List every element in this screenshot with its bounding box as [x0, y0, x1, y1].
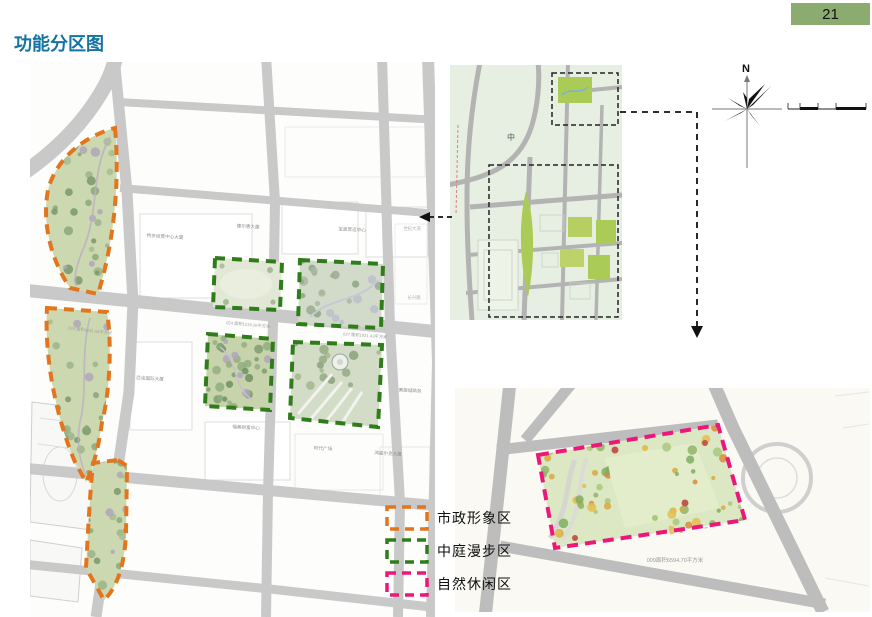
- legend-label-nature: 自然休闲区: [437, 574, 512, 594]
- overview-center-label: 中: [507, 132, 515, 142]
- nature-leisure-detail-map: 009面积6594.70平方米: [455, 388, 870, 612]
- main-site-plan: 特步运营中心大厦 德尔惠大厦 宝盖营运中心 匹克国际大厦 福美财富中心 时代广场…: [30, 62, 435, 617]
- legend-box-municipal: [387, 507, 427, 529]
- legend-label-municipal: 市政形象区: [437, 508, 512, 528]
- location-overview-map: 中: [450, 65, 622, 320]
- road-label: 长兴路: [407, 294, 421, 301]
- legend-item-nature: 自然休闲区: [384, 570, 512, 597]
- overview-roads: [450, 65, 622, 320]
- connector-to-detail: [620, 112, 703, 338]
- page-number: 21: [822, 6, 839, 23]
- legend-swatch-nature: [384, 570, 430, 598]
- courtyard-zone-3: [202, 334, 273, 412]
- road-label: 世纪大道: [403, 225, 421, 232]
- page-title: 功能分区图: [14, 30, 104, 56]
- detail-map-svg: 009面积6594.70平方米: [455, 388, 870, 612]
- courtyard-zone-4: [290, 339, 382, 427]
- courtyard-zone-1: [213, 258, 282, 310]
- detail-parcel-lines: [825, 392, 869, 586]
- legend-box-nature: [387, 573, 427, 595]
- legend-item-courtyard: 中庭漫步区: [384, 537, 512, 564]
- legend-label-courtyard: 中庭漫步区: [437, 541, 512, 561]
- compass-rose-icon: N: [712, 63, 782, 168]
- overview-map-svg: 中: [450, 65, 622, 320]
- page: { "page": { "title": "功能分区图", "number": …: [0, 0, 872, 617]
- legend-swatch-courtyard: [384, 537, 430, 565]
- scale-bar: [788, 103, 866, 110]
- building-label: 鸿星尔克大厦: [374, 449, 402, 457]
- legend-box-courtyard: [387, 540, 427, 562]
- main-site-plan-svg: 特步运营中心大厦 德尔惠大厦 宝盖营运中心 匹克国际大厦 福美财富中心 时代广场…: [30, 62, 435, 617]
- legend-item-municipal: 市政形象区: [384, 504, 512, 531]
- building-label: 美旗城商务: [398, 386, 422, 394]
- courtyard-zone-2: [297, 254, 383, 331]
- building-label: 时代广场: [314, 445, 333, 453]
- boundary-line: [456, 125, 458, 215]
- legend-swatch-municipal: [384, 504, 430, 532]
- detail-area-annotation: 009面积6594.70平方米: [647, 556, 704, 564]
- page-number-badge: 21: [791, 3, 870, 25]
- north-label: N: [742, 63, 750, 75]
- arrow-down-icon: [691, 326, 703, 338]
- legend: 市政形象区 中庭漫步区 自然休闲区: [384, 504, 512, 597]
